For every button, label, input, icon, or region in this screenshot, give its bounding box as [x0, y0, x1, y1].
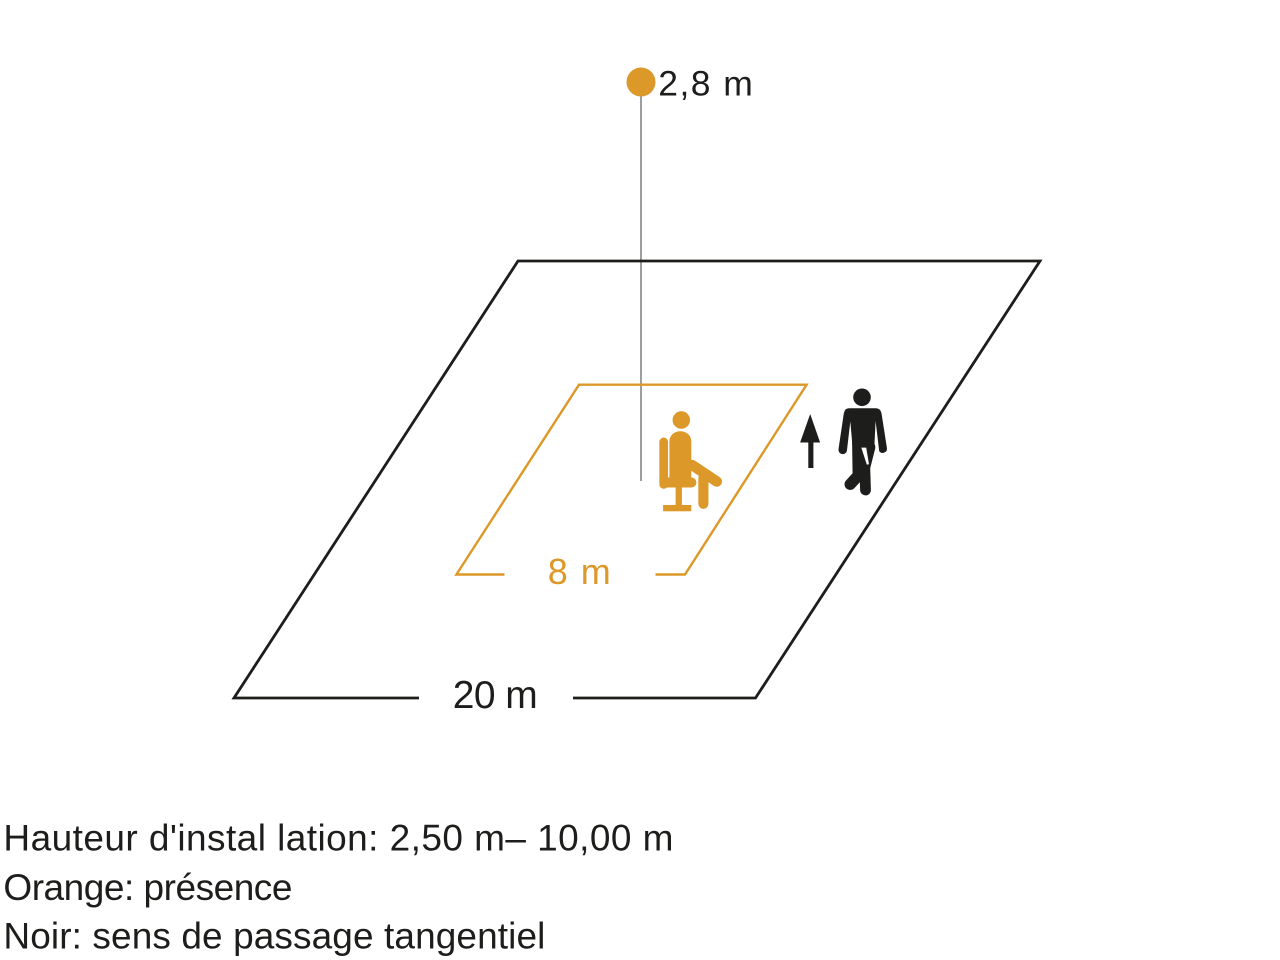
svg-text:Noir: sens de passage tangenti: Noir: sens de passage tangentiel — [3, 915, 545, 956]
svg-text:20 m: 20 m — [453, 674, 538, 717]
svg-text:2,8 m: 2,8 m — [658, 63, 753, 103]
svg-text:8 m: 8 m — [548, 551, 611, 592]
svg-text:Hauteur d'instal lation: 2,50: Hauteur d'instal lation: 2,50 m– 10,00 m — [3, 818, 673, 859]
svg-text:Orange: présence: Orange: présence — [3, 867, 292, 908]
